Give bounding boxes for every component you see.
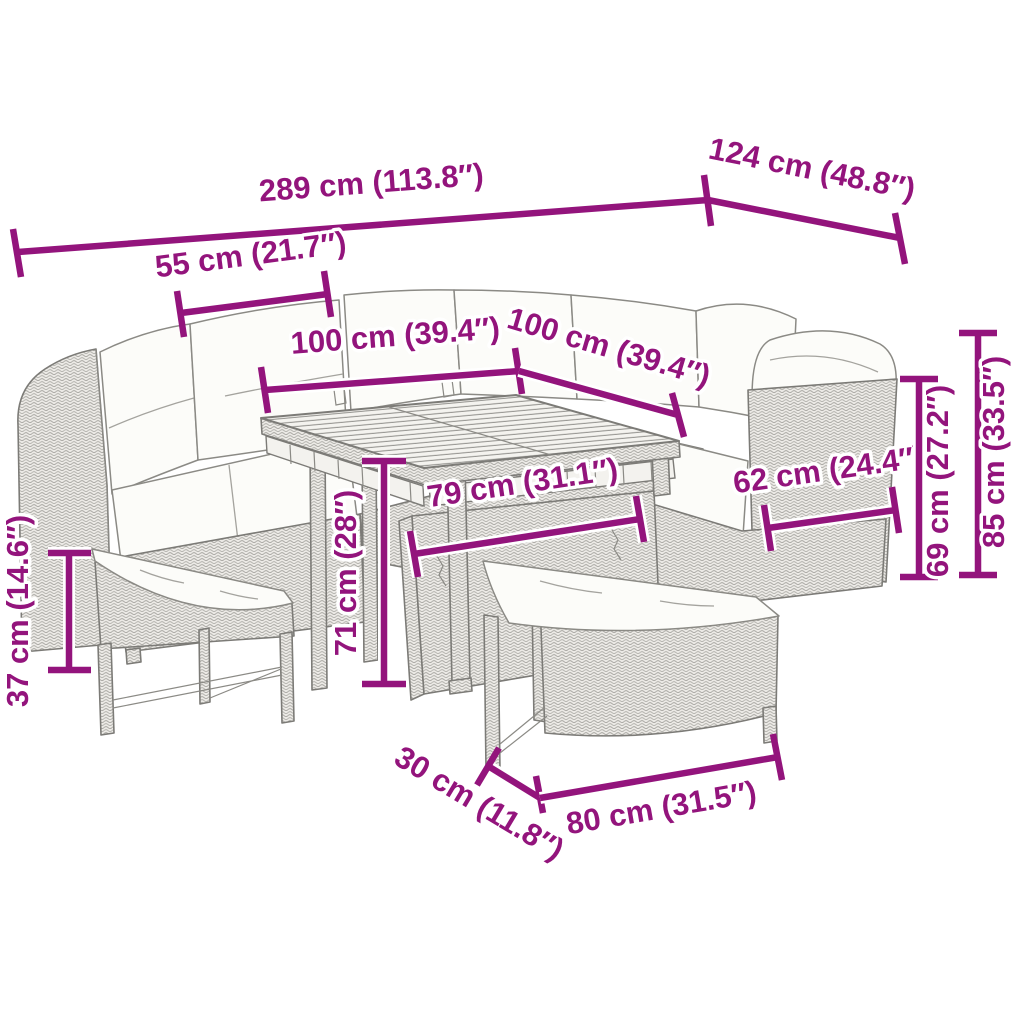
dimension-seat-back-height: 69 cm (27.2″)	[900, 379, 955, 577]
dimension-diagram-page: 289 cm (113.8″) 124 cm (48.8″) 55 cm (21…	[0, 0, 1024, 1024]
dimension-label: 289 cm (113.8″)	[258, 157, 485, 209]
table-leg-back	[362, 463, 378, 662]
dimension-line	[708, 200, 905, 264]
left-back-cushion-1	[100, 324, 198, 494]
bench-left-leg-front	[98, 643, 114, 735]
dimension-label: 85 cm (33.5″)	[976, 356, 1011, 548]
bench-left-leg-mid	[199, 628, 210, 704]
table-leg-west	[310, 448, 327, 690]
dimension-label: 69 cm (27.2″)	[920, 385, 955, 577]
dimension-total-depth: 124 cm (48.8″)	[706, 131, 918, 264]
bench-left-shelf	[113, 667, 282, 708]
dimension-total-length: 289 cm (113.8″)	[13, 157, 711, 277]
bench-left-leg-right	[280, 632, 294, 723]
left-section-foot	[126, 648, 141, 664]
dimension-label: 71 cm (28″)	[328, 490, 363, 657]
dimension-bench-length: 80 cm (31.5″)	[540, 734, 782, 841]
dimension-total-height: 85 cm (33.5″)	[959, 333, 1011, 575]
table-foot-south	[449, 678, 472, 694]
dimension-label: 37 cm (14.6″)	[0, 515, 35, 707]
furniture-dimension-diagram: 289 cm (113.8″) 124 cm (48.8″) 55 cm (21…	[0, 0, 1024, 1024]
dimension-label: 124 cm (48.8″)	[706, 131, 918, 207]
